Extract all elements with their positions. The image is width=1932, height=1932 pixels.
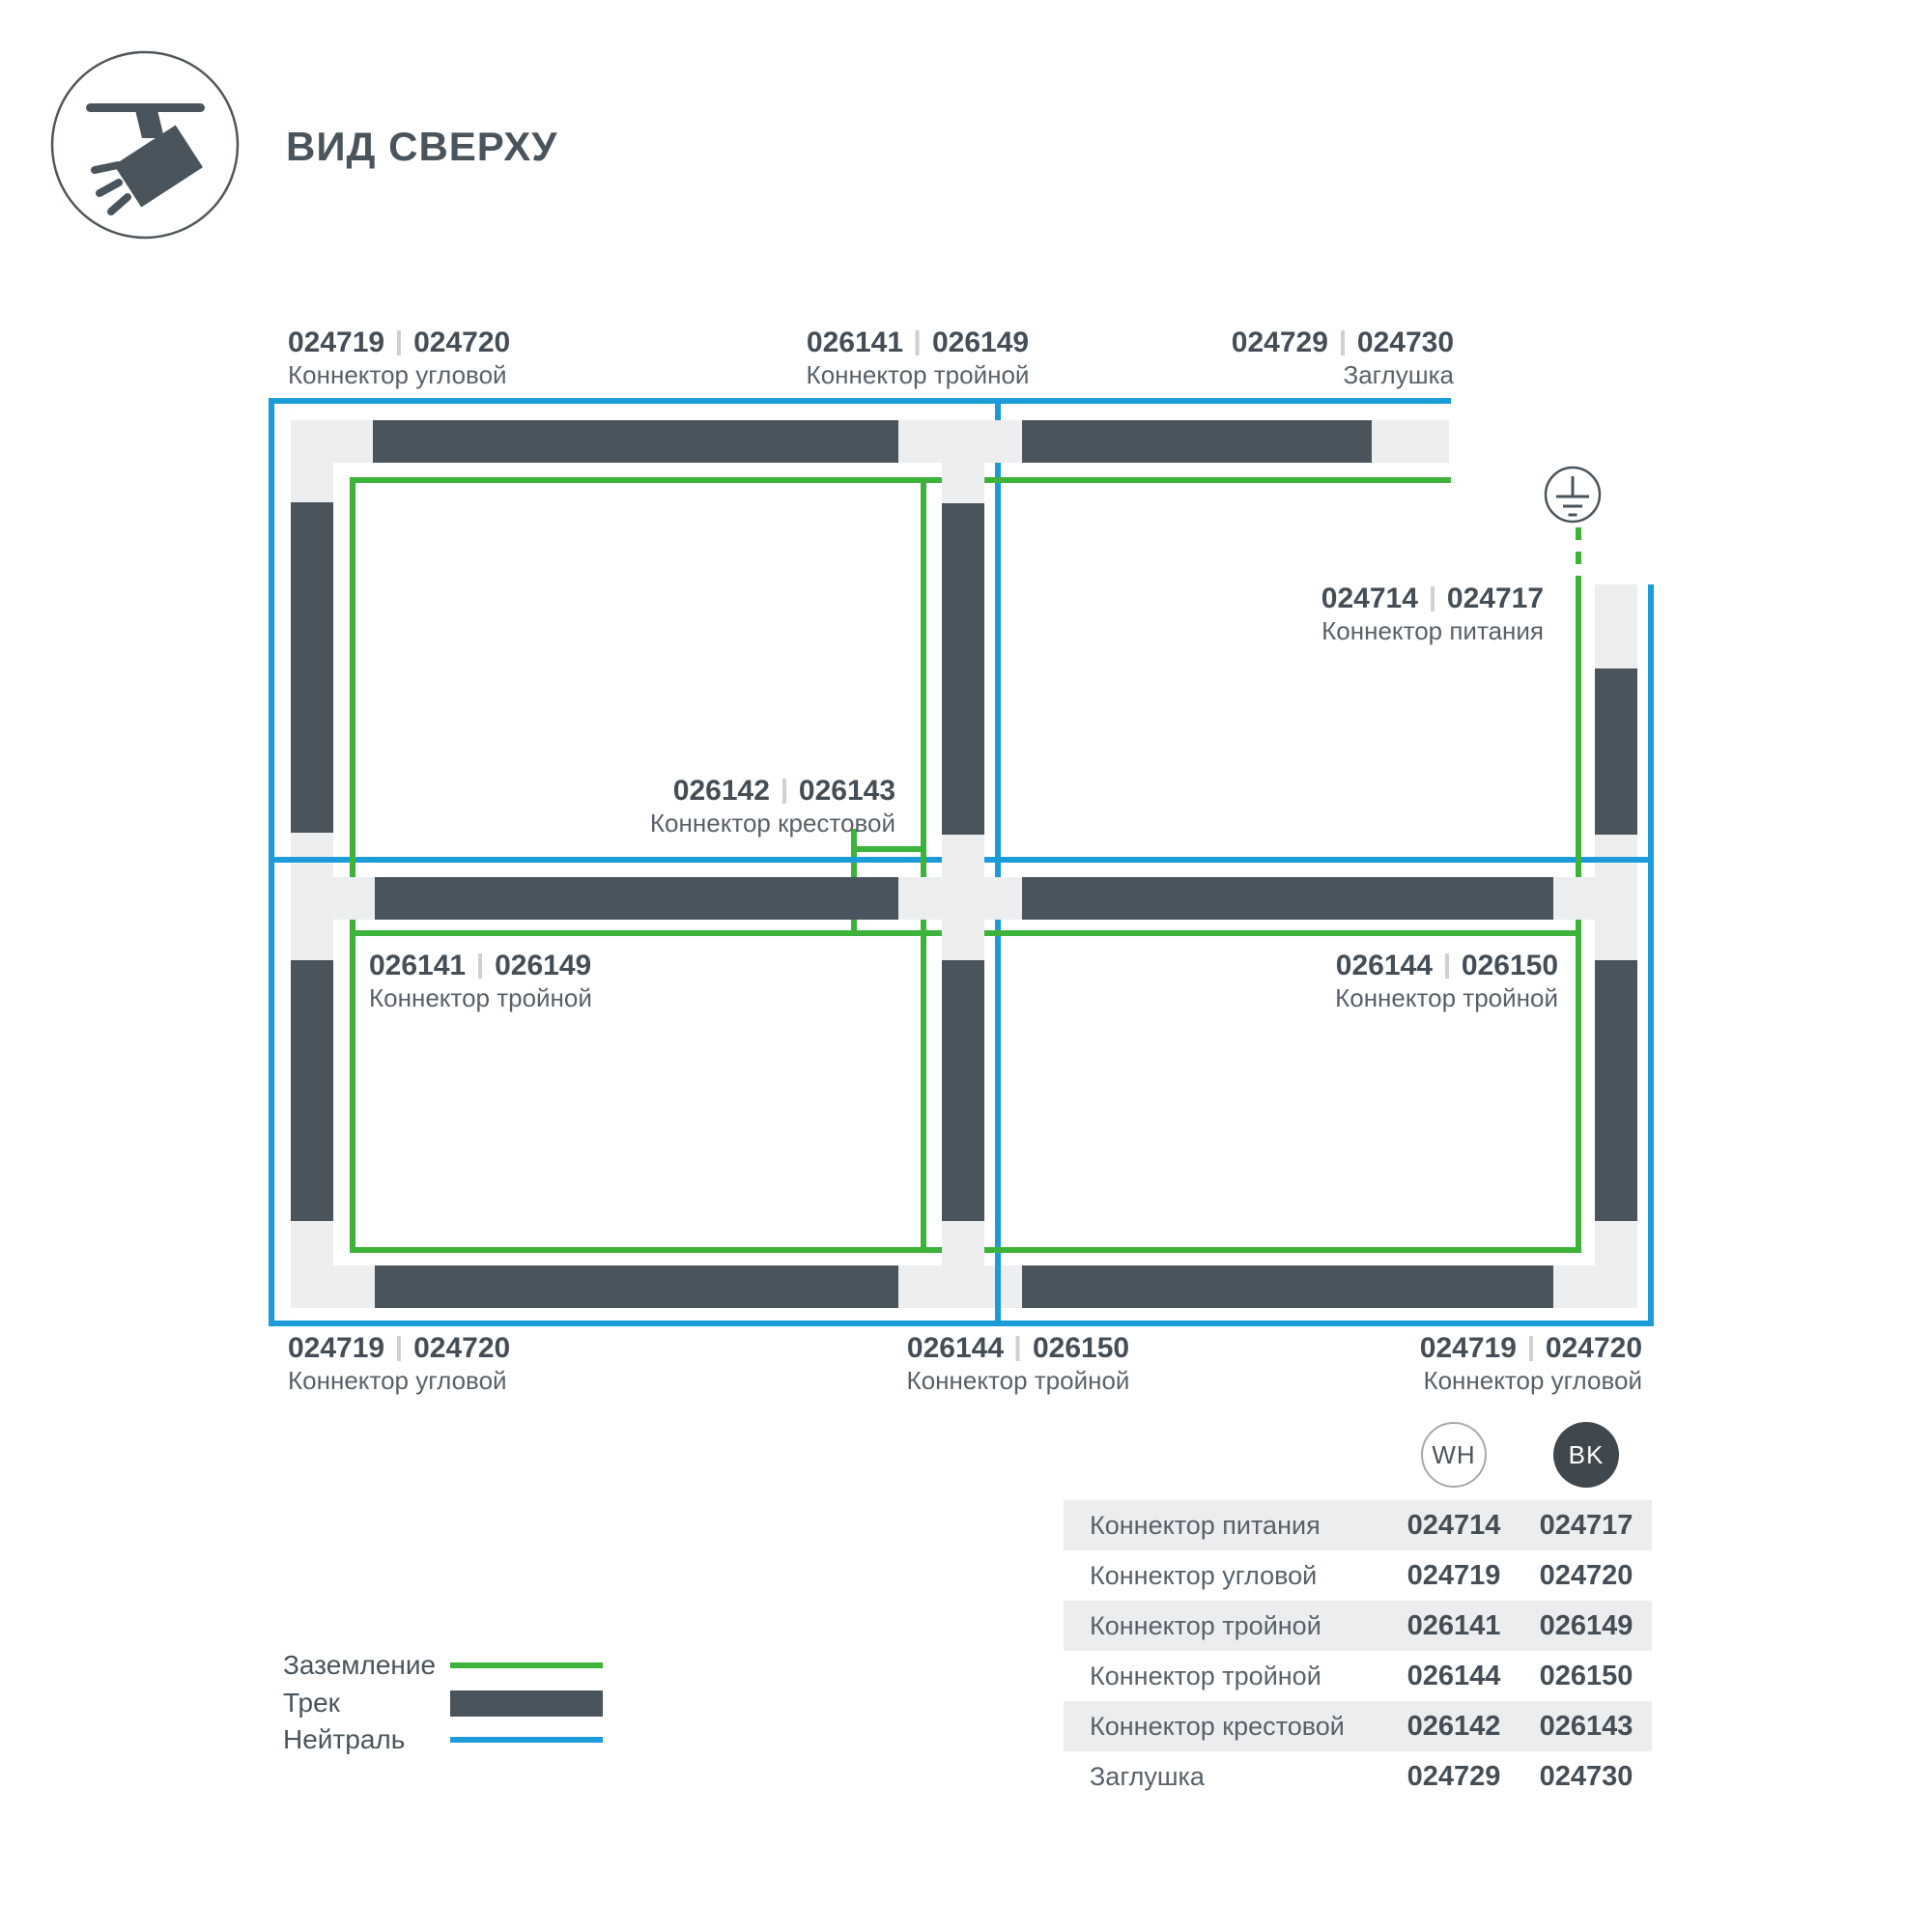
part-label-cross-connector: 026142026143 Коннектор крестовой: [650, 775, 895, 838]
black-variant-badge: BK: [1553, 1422, 1619, 1488]
ground-wire-middle-vertical: [921, 477, 926, 1253]
legend-neutral-label: Нейтраль: [283, 1723, 405, 1756]
track-segment: [373, 420, 898, 463]
track-segment: [291, 960, 333, 1221]
neutral-wire-bottom: [269, 1321, 1654, 1326]
table-row: Коннектор крестовой 026142 026143: [1064, 1701, 1652, 1751]
power-connector: [1595, 584, 1637, 668]
track-segment: [291, 502, 333, 833]
track-segment: [1022, 420, 1372, 463]
neutral-wire-top: [269, 398, 1451, 404]
tee-connector: [1553, 877, 1595, 920]
tee-connector: [333, 877, 375, 920]
track-segment: [1595, 668, 1637, 835]
part-label-tee-right: 026144026150 Коннектор тройной: [1335, 950, 1558, 1013]
ground-wire-feed-dashed: [1576, 527, 1581, 584]
cross-connector: [942, 835, 984, 960]
track-segment: [942, 503, 984, 835]
tee-connector: [898, 420, 1022, 463]
track-segment: [942, 960, 984, 1221]
track-segment: [375, 1265, 898, 1308]
corner-connector: [291, 420, 333, 502]
white-variant-badge: WH: [1421, 1422, 1487, 1488]
legend-ground-label: Заземление: [283, 1649, 436, 1682]
page-title: ВИД СВЕРХУ: [286, 124, 557, 170]
ground-earth-icon: [1542, 464, 1604, 526]
ground-wire-left: [350, 477, 355, 1253]
tee-connector: [942, 463, 984, 503]
legend-track-label: Трек: [283, 1687, 340, 1719]
part-label-end-cap: 024729024730 Заглушка: [1232, 327, 1454, 390]
part-label-corner-bottom-right: 024719024720 Коннектор угловой: [1420, 1332, 1642, 1396]
table-row: Коннектор тройной 026141 026149: [1064, 1601, 1652, 1651]
track-segment: [375, 877, 898, 920]
neutral-wire-right: [1648, 584, 1654, 1326]
part-label-corner-top-left: 024719024720 Коннектор угловой: [288, 327, 510, 390]
track-segment: [1022, 1265, 1556, 1308]
legend-track-bar: [450, 1690, 603, 1717]
table-row: Коннектор питания 024714 024717: [1064, 1500, 1652, 1550]
track-segment: [1595, 960, 1637, 1221]
part-label-tee-bottom: 026144026150 Коннектор тройной: [907, 1332, 1130, 1396]
track-segment: [1022, 877, 1553, 920]
tee-connector: [942, 1221, 984, 1265]
ground-wire-top: [350, 477, 1451, 483]
table-row: Заглушка 024729 024730: [1064, 1751, 1652, 1802]
end-cap: [1372, 420, 1449, 463]
part-label-power-connector: 024714024717 Коннектор питания: [1321, 582, 1544, 646]
tee-connector: [1595, 835, 1637, 960]
legend-neutral-line: [450, 1737, 603, 1743]
corner-connector: [1553, 1265, 1637, 1308]
part-label-corner-bottom-left: 024719024720 Коннектор угловой: [288, 1332, 510, 1396]
ground-wire-cross-jog-h: [851, 846, 926, 852]
tee-connector: [291, 833, 333, 960]
tee-connector: [898, 1265, 1022, 1308]
table-row: Коннектор угловой 024719 024720: [1064, 1550, 1652, 1601]
table-row: Коннектор тройной 026144 026150: [1064, 1651, 1652, 1701]
part-label-tee-left: 026141026149 Коннектор тройной: [369, 950, 592, 1013]
track-spotlight-icon: [48, 48, 241, 241]
legend-ground-line: [450, 1662, 603, 1668]
part-label-tee-top: 026141026149 Коннектор тройной: [807, 327, 1030, 390]
corner-connector: [291, 1265, 375, 1308]
